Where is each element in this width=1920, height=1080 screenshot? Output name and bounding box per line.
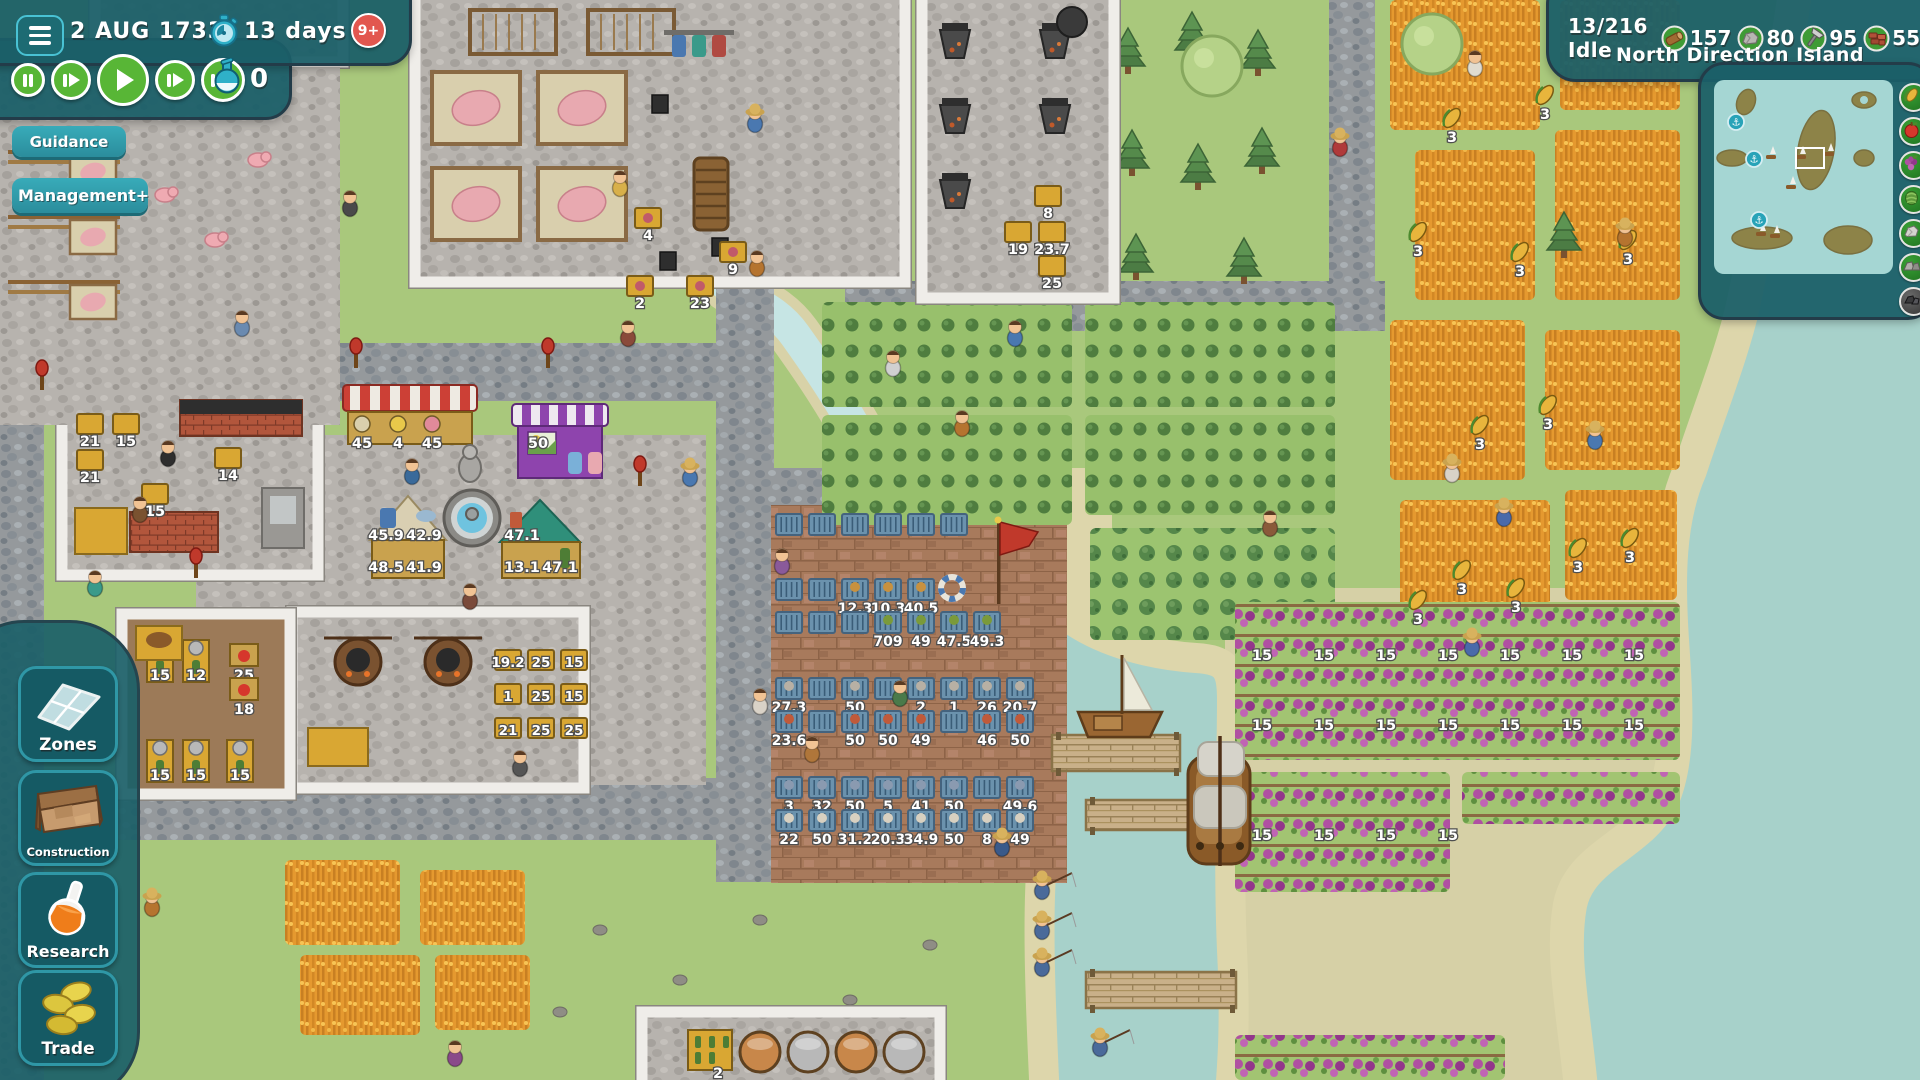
minimap-canvas[interactable]: ⚓⚓⚓ — [1714, 80, 1893, 274]
world-label: 15 — [1376, 648, 1396, 664]
world-label: 47.1 — [504, 528, 540, 544]
minimap-panel[interactable]: ⚓⚓⚓ — [1698, 62, 1920, 320]
world-label: 15 — [1562, 648, 1582, 664]
world-label: 4 — [393, 436, 403, 452]
stone-rail-icon[interactable] — [1899, 219, 1920, 248]
villager — [613, 171, 628, 197]
sidebar-item-zones[interactable]: Zones — [18, 666, 118, 762]
zones-icon — [33, 677, 103, 735]
world-label: 23 — [690, 296, 710, 312]
world-label: 13.1 — [504, 560, 540, 576]
science-points: 0 — [250, 64, 268, 94]
vineyard — [1462, 772, 1680, 824]
world-label: 23.6 — [772, 733, 807, 749]
world-label: 9 — [728, 262, 738, 278]
world-label: 45 — [422, 436, 442, 452]
world-label: 50 — [1010, 733, 1030, 749]
play-button[interactable] — [97, 54, 149, 106]
pig-pen — [0, 67, 340, 425]
grapes-icon[interactable] — [1899, 151, 1920, 180]
minimap-island — [1733, 87, 1759, 118]
world-label: 15 — [1562, 718, 1582, 734]
wheat-field — [300, 955, 420, 1035]
storage-crate — [809, 579, 835, 600]
villager — [775, 549, 790, 575]
world-label: 21 — [499, 723, 518, 739]
villager — [1263, 511, 1278, 537]
storage-crate — [776, 579, 802, 600]
rocks-icon[interactable] — [1899, 253, 1920, 282]
world-label: 50 — [528, 436, 548, 452]
crop-field — [822, 415, 1072, 525]
construction-icon — [32, 780, 104, 840]
world-label: 15 — [1500, 718, 1520, 734]
world-label: 15 — [1252, 718, 1272, 734]
world-label: 20.3 — [871, 832, 906, 848]
villager — [88, 571, 103, 597]
vineyard — [1235, 602, 1680, 760]
minimap-island — [1717, 150, 1747, 166]
zones-label: Zones — [21, 735, 115, 755]
crop-field — [1085, 302, 1335, 407]
world-label: 45.9 — [368, 528, 404, 544]
world-label: 21 — [80, 434, 100, 450]
world-label: 15 — [1624, 718, 1644, 734]
world-label: 41.9 — [406, 560, 442, 576]
management-button[interactable]: Management+ — [12, 178, 148, 213]
storage-crate — [842, 514, 868, 535]
notification-badge[interactable]: 9+ — [351, 13, 386, 48]
world-label: 15 — [1252, 828, 1272, 844]
minimap-ship — [1824, 152, 1834, 156]
crop-field — [822, 302, 1072, 407]
world-label: 50 — [812, 832, 832, 848]
world-label: 49 — [911, 634, 930, 650]
villager — [235, 311, 250, 337]
world-label: 22 — [779, 832, 798, 848]
minimap-ship — [1756, 232, 1766, 236]
stopwatch-icon — [208, 14, 240, 52]
villager — [1008, 321, 1023, 347]
charcoal-kiln — [940, 105, 970, 133]
wheat-field — [1555, 130, 1680, 300]
villager — [753, 689, 768, 715]
world-label: 15 — [1438, 828, 1458, 844]
world-label: 19.2 — [491, 655, 524, 671]
apple-icon[interactable] — [1899, 117, 1920, 146]
world-label: 15 — [116, 434, 136, 450]
villager — [886, 351, 901, 377]
world-label: 15 — [1438, 718, 1458, 734]
clothes-rack — [712, 35, 726, 57]
tree — [1402, 14, 1462, 74]
world-label: 25 — [532, 655, 551, 671]
villager — [513, 751, 528, 777]
world-label: 2 — [713, 1066, 723, 1080]
charcoal-kiln — [940, 30, 970, 58]
svg-text:⚓: ⚓ — [1732, 118, 1741, 129]
world-label: 47.5 — [937, 634, 972, 650]
wheat-field — [420, 870, 525, 945]
sidebar-item-construction[interactable]: Construction — [18, 770, 118, 866]
minimap-ship — [1786, 185, 1796, 189]
world-label: 25 — [565, 723, 584, 739]
tree — [1182, 36, 1242, 96]
charcoal-kiln — [1040, 105, 1070, 133]
minimap-ship — [1770, 234, 1780, 238]
wheat-field — [285, 860, 400, 945]
world-label: 3 — [1413, 244, 1423, 260]
storage-crate — [842, 612, 868, 633]
world-label: 3 — [1475, 437, 1485, 453]
game-date: 2 AUG 1733 — [70, 19, 224, 44]
pier — [1052, 735, 1180, 771]
villager — [805, 737, 820, 763]
storage-crate — [941, 514, 967, 535]
clothes-rack — [672, 35, 686, 57]
world-label: 50 — [944, 832, 964, 848]
crop-field — [1085, 415, 1335, 515]
world-label: 3 — [1457, 582, 1467, 598]
world-label: 15 — [565, 689, 584, 705]
minimap-ship — [1796, 155, 1806, 159]
storage-crate — [941, 711, 967, 732]
charcoal-kiln — [940, 180, 970, 208]
wheat-field — [435, 955, 530, 1030]
villager — [955, 411, 970, 437]
svg-text:⚓: ⚓ — [1755, 216, 1764, 227]
storage-crate — [776, 612, 802, 633]
world-label: 3 — [1623, 252, 1633, 268]
world-label: 3 — [1511, 600, 1521, 616]
storage-crate — [974, 777, 1000, 798]
sidebar-item-trade[interactable]: Trade — [18, 970, 118, 1066]
world-label: 15 — [150, 668, 170, 684]
world-label: 15 — [1438, 648, 1458, 664]
world-label: 8 — [1043, 206, 1053, 222]
guidance-button[interactable]: Guidance — [12, 126, 126, 157]
wheat-field — [1390, 320, 1525, 480]
villager — [405, 459, 420, 485]
world-label: 3 — [1515, 264, 1525, 280]
minimap-island — [1854, 150, 1874, 166]
world-label: 15 — [1314, 718, 1334, 734]
world-label: 49 — [911, 733, 930, 749]
world-label: 3 — [1573, 560, 1583, 576]
sidebar-item-research[interactable]: Research — [18, 872, 118, 968]
world-label: 709 — [873, 634, 902, 650]
villager — [133, 497, 148, 523]
storage-crate — [776, 514, 802, 535]
world-label: 25 — [532, 689, 551, 705]
market-stall-awning — [343, 385, 477, 411]
world-label: 50 — [878, 733, 898, 749]
world-label: 15 — [1314, 648, 1334, 664]
world-label: 15 — [1500, 648, 1520, 664]
storage-crate — [908, 514, 934, 535]
world-label: 25 — [532, 723, 551, 739]
minimap-resource-rail — [1899, 83, 1920, 316]
coal-icon[interactable] — [1899, 287, 1920, 316]
world-label: 8 — [982, 832, 992, 848]
world-label: 15 — [1376, 828, 1396, 844]
world-label: 31.2 — [838, 832, 873, 848]
world-label: 49 — [1010, 832, 1029, 848]
world-label: 3 — [1447, 130, 1457, 146]
research-icon — [38, 879, 98, 945]
world-label: 15 — [1252, 648, 1272, 664]
villager — [463, 584, 478, 610]
pier — [1086, 972, 1236, 1008]
research-label: Research — [21, 942, 115, 961]
cabbage-icon[interactable] — [1899, 185, 1920, 214]
world-label: 12 — [186, 668, 206, 684]
world-label: 25 — [1042, 276, 1062, 292]
pause-button[interactable] — [11, 63, 45, 97]
villager — [1468, 51, 1483, 77]
world-label: 47.1 — [542, 560, 578, 576]
corn-icon[interactable] — [1899, 83, 1920, 112]
world-label: 2 — [635, 296, 645, 312]
trade-label: Trade — [21, 1039, 115, 1059]
world-label: 1 — [503, 689, 512, 705]
world-label: 34.9 — [904, 832, 939, 848]
construction-label: Construction — [21, 845, 115, 859]
world-label: 48.5 — [368, 560, 404, 576]
world-label: 18 — [234, 702, 254, 718]
world-label: 19 — [1008, 242, 1028, 258]
cobblestone-road — [1329, 0, 1375, 330]
science-flask-icon — [212, 58, 242, 100]
science-counter: 0 — [212, 58, 268, 100]
world-label: 42.9 — [406, 528, 442, 544]
game-screen: 1515151515151515151515151515151515153333… — [0, 0, 1920, 1080]
world-label: 15 — [1376, 718, 1396, 734]
clothes-rack — [692, 35, 706, 57]
wheat-field — [1545, 330, 1680, 470]
world-label: 49.3 — [970, 634, 1005, 650]
world-label: 15 — [1624, 648, 1644, 664]
speed-1-button[interactable] — [51, 60, 91, 100]
trade-icon — [36, 980, 100, 1040]
minimap-island — [1824, 226, 1872, 254]
world-label: 21 — [80, 470, 100, 486]
world-label: 15 — [1314, 828, 1334, 844]
world-label: 3 — [1413, 612, 1423, 628]
speed-2-button[interactable] — [155, 60, 195, 100]
storage-crate — [809, 678, 835, 699]
svg-text:⚓: ⚓ — [1750, 155, 1759, 166]
world-label: 15 — [565, 655, 584, 671]
world-label: 50 — [845, 733, 865, 749]
villager — [161, 441, 176, 467]
villager — [621, 321, 636, 347]
world-label: 3 — [1625, 550, 1635, 566]
world-label: 45 — [352, 436, 372, 452]
villager — [448, 1041, 463, 1067]
vineyard — [1235, 1035, 1505, 1080]
world-label: 3 — [1540, 107, 1550, 123]
storage-crate — [809, 612, 835, 633]
world-label: 15 — [186, 768, 206, 784]
world-label: 46 — [977, 733, 996, 749]
storage-crate — [875, 514, 901, 535]
game-world-viewport[interactable]: 1515151515151515151515151515151515153333… — [0, 0, 1920, 1080]
world-label: 14 — [218, 468, 238, 484]
world-label: 3 — [1543, 417, 1553, 433]
minimap-ship — [1766, 155, 1776, 159]
storage-crate — [809, 514, 835, 535]
timer-days: 13 days — [244, 19, 347, 44]
storage-crate — [809, 711, 835, 732]
clothing-stall — [512, 404, 608, 426]
villager — [893, 681, 908, 707]
world-label: 15 — [230, 768, 250, 784]
villager — [343, 191, 358, 217]
villager — [750, 251, 765, 277]
world-label: 4 — [643, 228, 653, 244]
trade-ship — [1188, 736, 1250, 866]
world-label: 15 — [150, 768, 170, 784]
